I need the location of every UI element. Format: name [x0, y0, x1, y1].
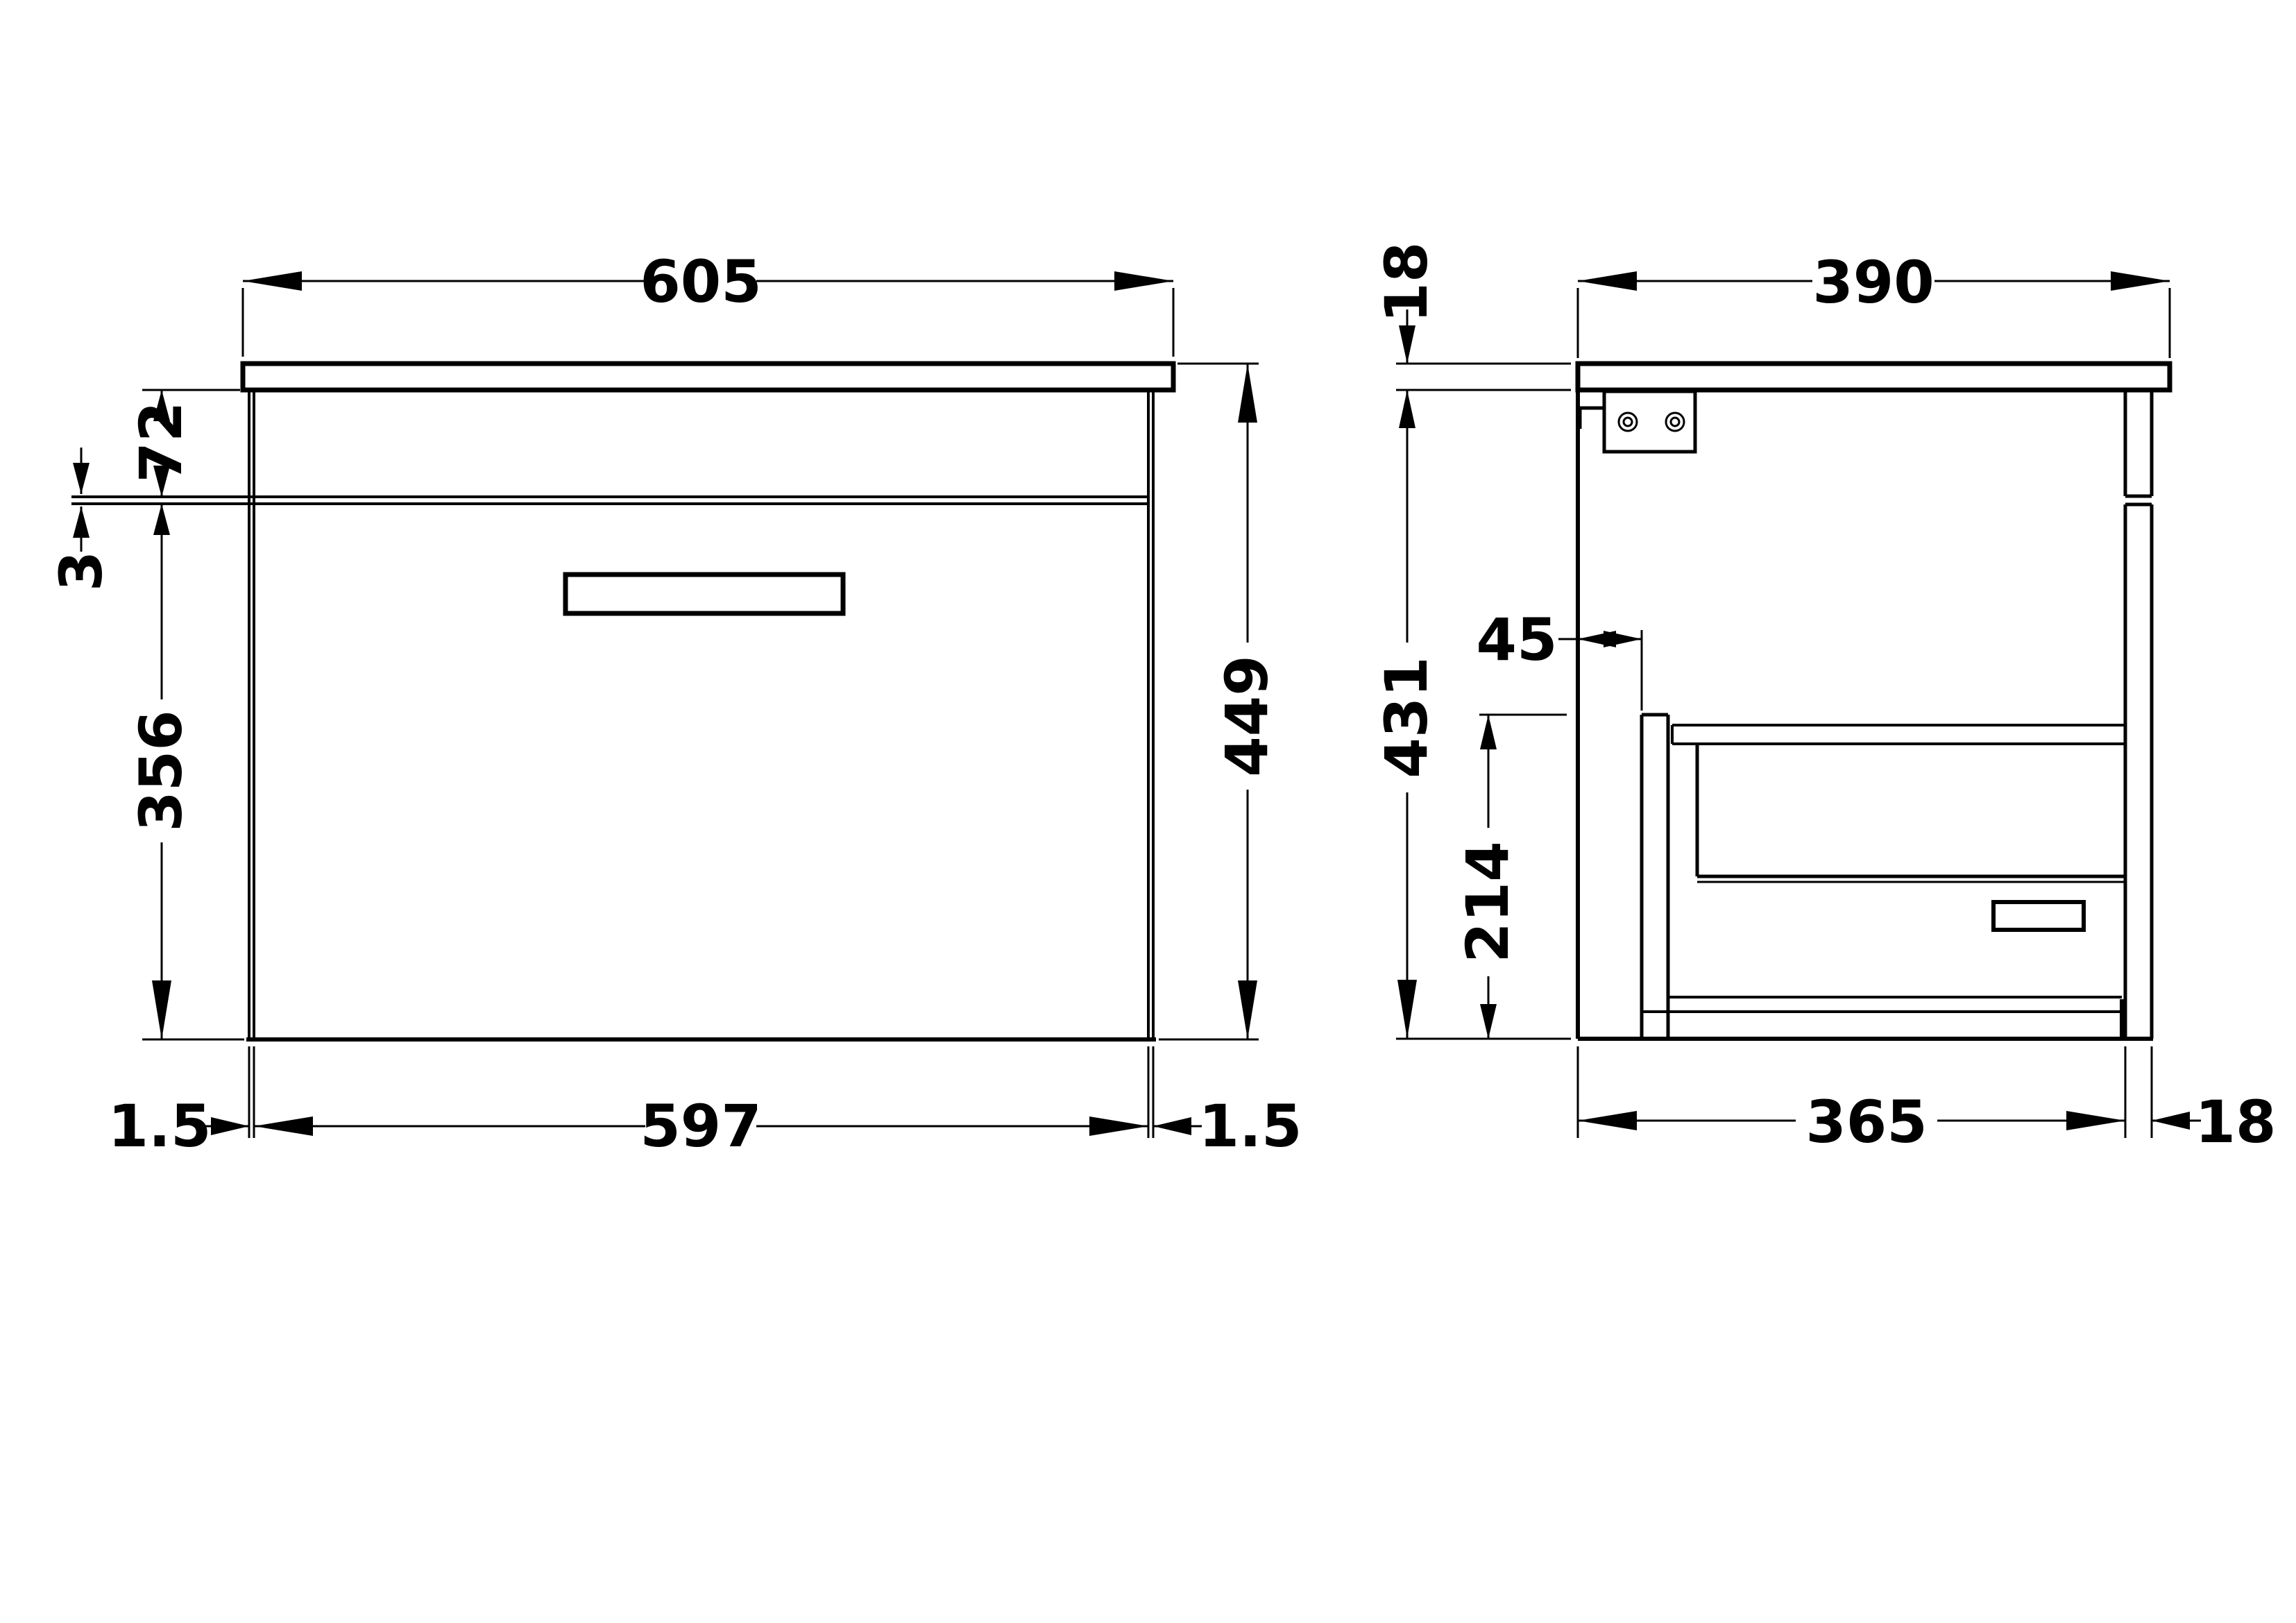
dim-label-45: 45	[1477, 606, 1558, 674]
dim-label-1.5-right: 1.5	[1199, 1092, 1302, 1160]
dim-label-449: 449	[1213, 655, 1281, 776]
dim-label-605: 605	[640, 248, 761, 316]
dim-label-365: 365	[1805, 1088, 1927, 1156]
dim-label-18-top: 18	[1372, 242, 1440, 323]
dim-label-597: 597	[640, 1092, 761, 1160]
dim-label-214: 214	[1454, 841, 1522, 962]
dim-label-72: 72	[127, 402, 195, 483]
dim-label-431: 431	[1372, 656, 1440, 778]
dim-label-1.5-left: 1.5	[108, 1092, 212, 1160]
dim-label-3: 3	[47, 551, 115, 591]
vanity-technical-drawing: 605 72 3 356	[0, 0, 2296, 1623]
dim-label-390: 390	[1812, 248, 1934, 316]
dim-label-356: 356	[127, 710, 195, 831]
dim-label-18-bottom: 18	[2195, 1088, 2277, 1156]
